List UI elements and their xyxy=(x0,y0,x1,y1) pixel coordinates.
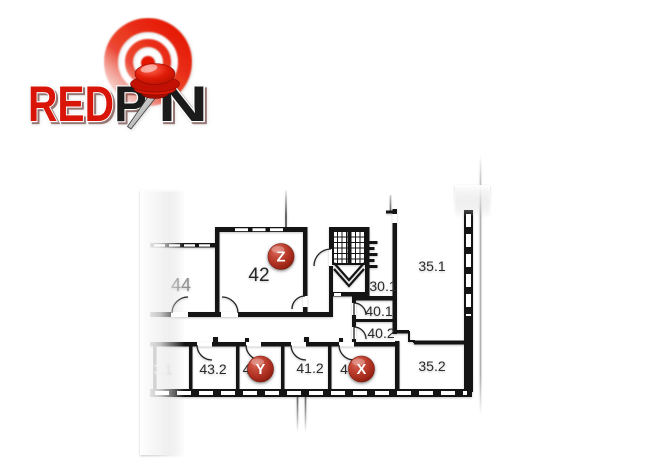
room-label-hidden-x: 4 xyxy=(340,361,348,377)
floor-plan-map[interactable]: 44 42 35.1 30.1 40.1 40.2 3.1 43.2 4 41.… xyxy=(0,0,650,465)
room-label-41-2: 41.2 xyxy=(296,360,323,376)
redpin-app: RED P N xyxy=(0,0,650,465)
room-label-40-1: 40.1 xyxy=(365,303,392,319)
left-fade-overlay xyxy=(140,190,185,455)
room-label-40-2: 40.2 xyxy=(367,325,394,341)
room-label-42: 42 xyxy=(248,265,269,286)
room-label-30-1: 30.1 xyxy=(369,278,396,294)
staircase xyxy=(333,231,365,286)
room-label-35-1: 35.1 xyxy=(418,258,445,274)
map-marker-x[interactable]: X xyxy=(349,356,375,382)
marker-label-y: Y xyxy=(256,362,266,378)
room-labels: 44 42 35.1 30.1 40.1 40.2 3.1 43.2 4 41.… xyxy=(154,258,446,377)
marker-label-z: Z xyxy=(277,250,286,266)
map-marker-y[interactable]: Y xyxy=(248,356,274,382)
top-fade-overlay xyxy=(455,185,490,217)
marker-label-x: X xyxy=(357,362,367,378)
room-label-35-2: 35.2 xyxy=(418,358,445,374)
room-label-43-2: 43.2 xyxy=(199,361,226,377)
map-marker-z[interactable]: Z xyxy=(268,244,294,270)
stair-direction-arrow xyxy=(334,263,364,286)
